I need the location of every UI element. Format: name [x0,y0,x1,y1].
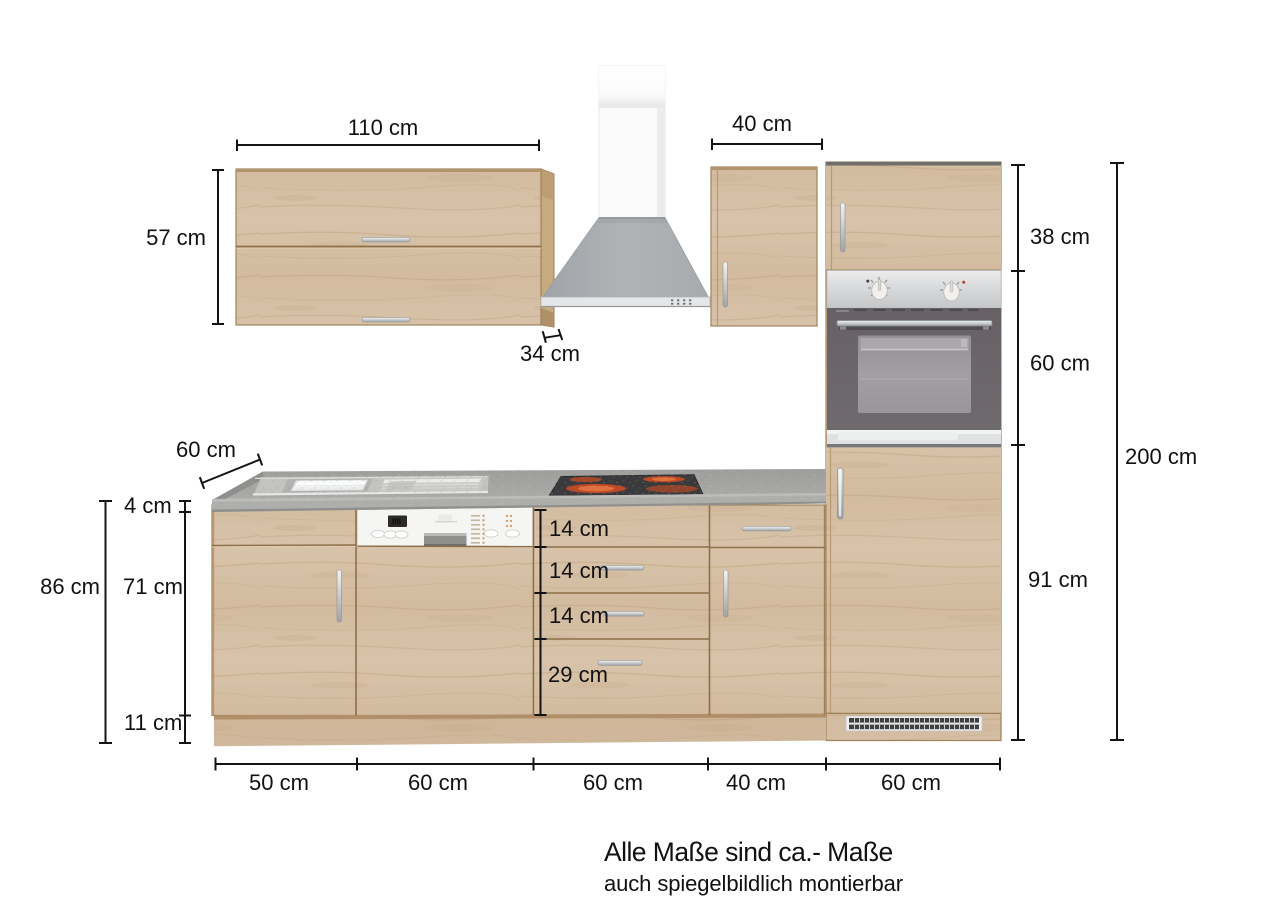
svg-text:200 cm: 200 cm [1125,444,1197,469]
svg-text:86 cm: 86 cm [40,574,100,599]
svg-text:57 cm: 57 cm [146,225,206,250]
svg-text:110 cm: 110 cm [348,115,419,140]
svg-text:14 cm: 14 cm [549,603,609,628]
svg-text:60 cm: 60 cm [583,770,643,795]
svg-text:14 cm: 14 cm [549,558,609,583]
svg-text:34 cm: 34 cm [520,341,580,366]
svg-text:60 cm: 60 cm [881,770,941,795]
svg-text:88: 88 [392,518,401,527]
svg-text:60 cm: 60 cm [176,437,236,462]
svg-text:50 cm: 50 cm [249,770,309,795]
svg-text:14 cm: 14 cm [549,516,609,541]
svg-text:91 cm: 91 cm [1028,567,1088,592]
svg-text:11 cm: 11 cm [124,710,182,735]
svg-text:71 cm: 71 cm [123,574,183,599]
svg-text:60 cm: 60 cm [1030,351,1090,376]
svg-text:auch spiegelbildlich montierba: auch spiegelbildlich montierbar [604,871,903,896]
svg-text:40 cm: 40 cm [726,770,786,795]
svg-text:29 cm: 29 cm [548,662,608,687]
svg-text:40 cm: 40 cm [732,111,792,136]
svg-text:60 cm: 60 cm [408,770,468,795]
svg-text:38 cm: 38 cm [1030,224,1090,249]
svg-text:4 cm: 4 cm [124,493,172,518]
svg-text:Alle Maße sind ca.- Maße: Alle Maße sind ca.- Maße [604,837,893,867]
